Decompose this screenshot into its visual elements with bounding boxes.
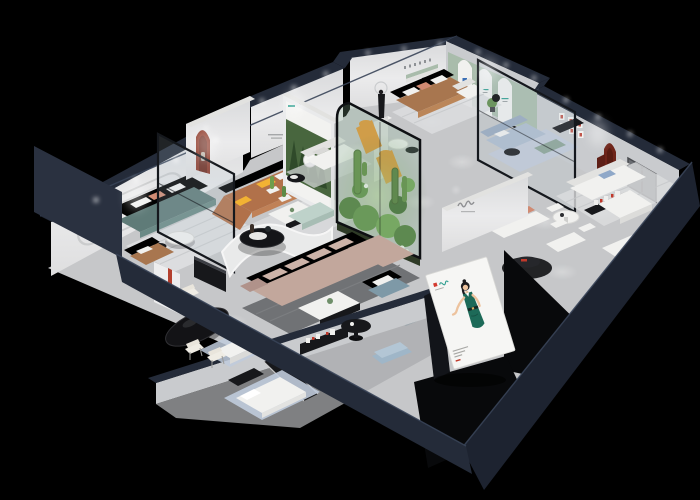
vase (265, 226, 271, 232)
vase (250, 224, 254, 233)
showroom-render (0, 0, 700, 500)
billboard-shadow (434, 373, 506, 387)
black-side-table (287, 174, 305, 183)
red-book (521, 259, 527, 262)
cup (350, 322, 354, 326)
